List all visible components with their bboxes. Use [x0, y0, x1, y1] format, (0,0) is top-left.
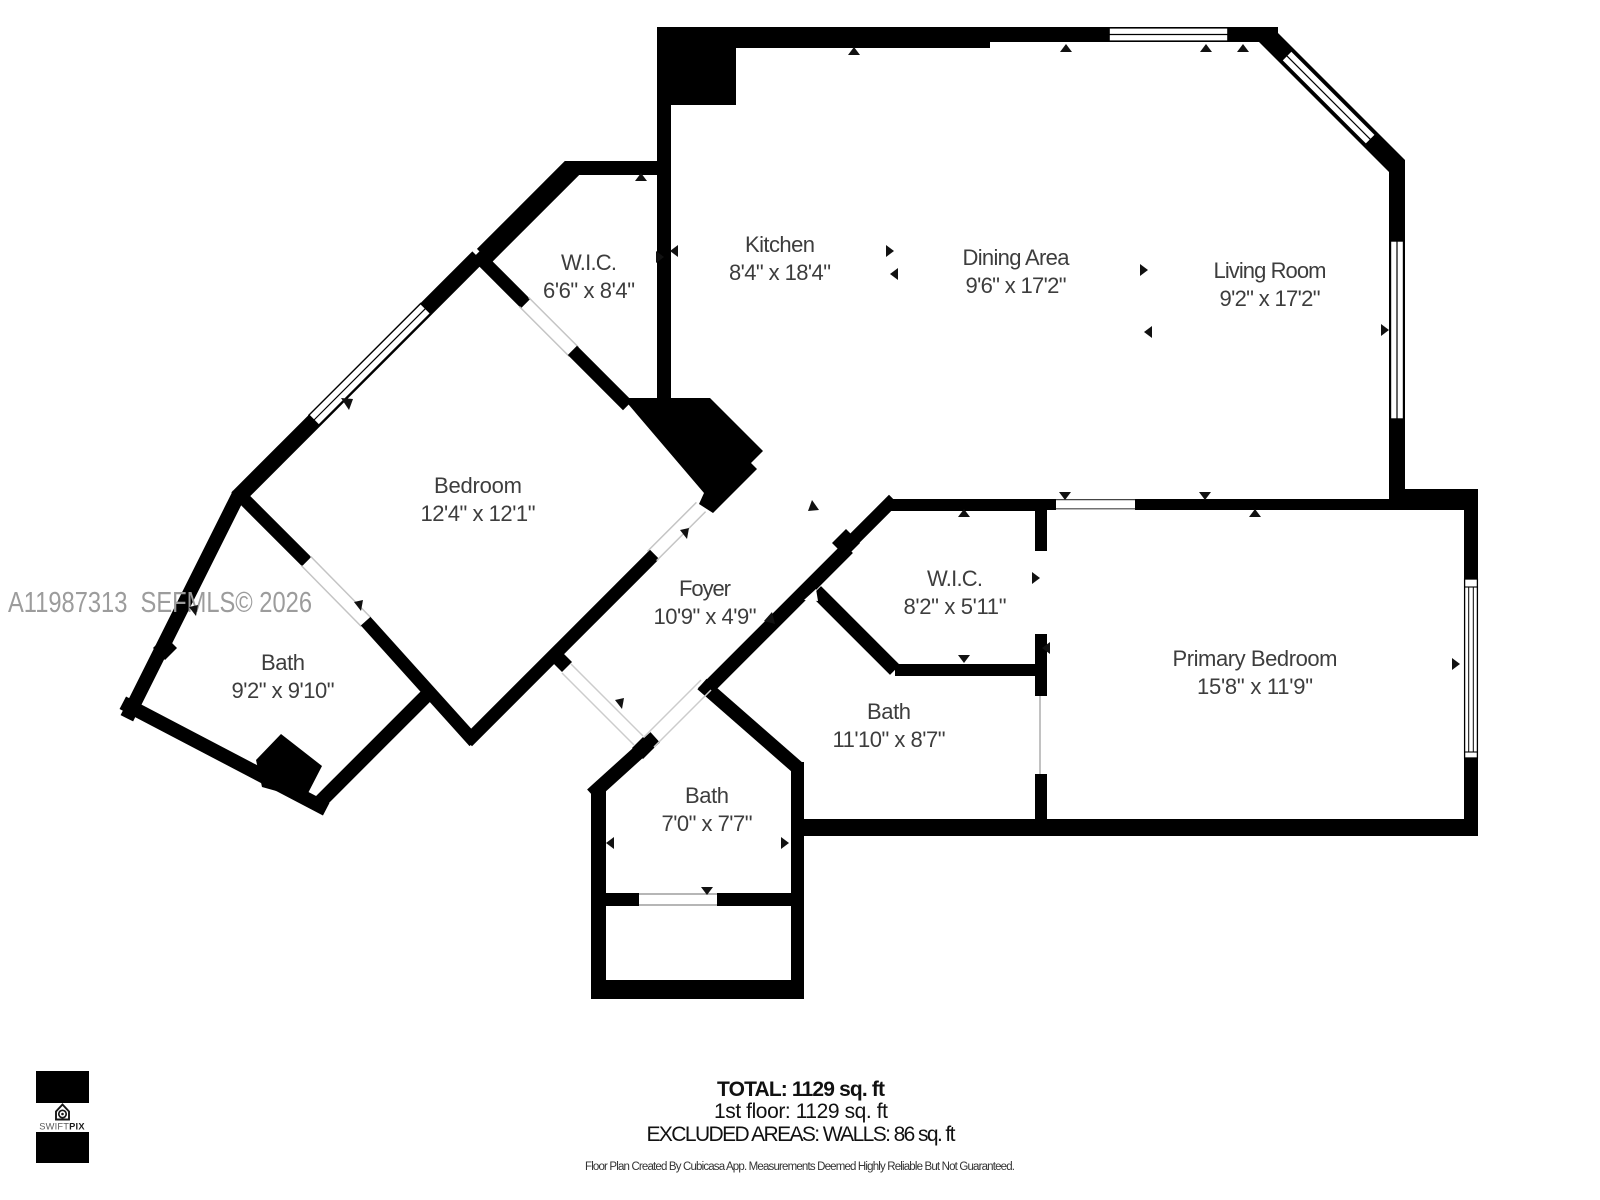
svg-text:1st floor: 1129 sq. ft: 1st floor: 1129 sq. ft	[714, 1100, 888, 1123]
svg-text:6'6" x 8'4": 6'6" x 8'4"	[543, 278, 635, 303]
svg-text:9'2" x 9'10": 9'2" x 9'10"	[232, 678, 335, 703]
svg-text:8'2" x 5'11": 8'2" x 5'11"	[904, 594, 1007, 619]
svg-text:Bath: Bath	[685, 783, 729, 808]
svg-text:SWIFTPIX: SWIFTPIX	[39, 1122, 85, 1132]
svg-text:Floor Plan Created By Cubicasa: Floor Plan Created By Cubicasa App. Meas…	[585, 1161, 1015, 1173]
svg-text:Bedroom: Bedroom	[434, 473, 522, 498]
svg-text:11'10" x 8'7": 11'10" x 8'7"	[833, 727, 946, 752]
svg-text:EXCLUDED AREAS: WALLS: 86 sq.: EXCLUDED AREAS: WALLS: 86 sq. ft	[647, 1123, 956, 1146]
svg-text:Living Room: Living Room	[1214, 258, 1327, 283]
svg-text:Kitchen: Kitchen	[745, 232, 815, 257]
svg-text:W.I.C.: W.I.C.	[927, 566, 983, 591]
svg-text:Bath: Bath	[867, 699, 911, 724]
svg-text:W.I.C.: W.I.C.	[561, 250, 617, 275]
svg-text:9'2" x 17'2": 9'2" x 17'2"	[1220, 286, 1321, 311]
svg-text:12'4" x 12'1": 12'4" x 12'1"	[421, 501, 536, 526]
svg-text:8'4" x 18'4": 8'4" x 18'4"	[729, 260, 831, 285]
svg-text:Foyer: Foyer	[679, 576, 731, 601]
svg-text:Dining Area: Dining Area	[963, 245, 1071, 270]
svg-text:A11987313 SEFMLS© 2026: A11987313 SEFMLS© 2026	[8, 587, 312, 619]
svg-text:7'0" x 7'7": 7'0" x 7'7"	[662, 811, 753, 836]
svg-text:10'9" x 4'9": 10'9" x 4'9"	[654, 604, 757, 629]
svg-text:Bath: Bath	[261, 650, 305, 675]
svg-text:TOTAL: 1129 sq. ft: TOTAL: 1129 sq. ft	[717, 1078, 885, 1101]
svg-text:15'8" x 11'9": 15'8" x 11'9"	[1197, 674, 1313, 699]
svg-text:9'6" x 17'2": 9'6" x 17'2"	[966, 273, 1067, 298]
svg-text:Primary Bedroom: Primary Bedroom	[1173, 646, 1338, 671]
